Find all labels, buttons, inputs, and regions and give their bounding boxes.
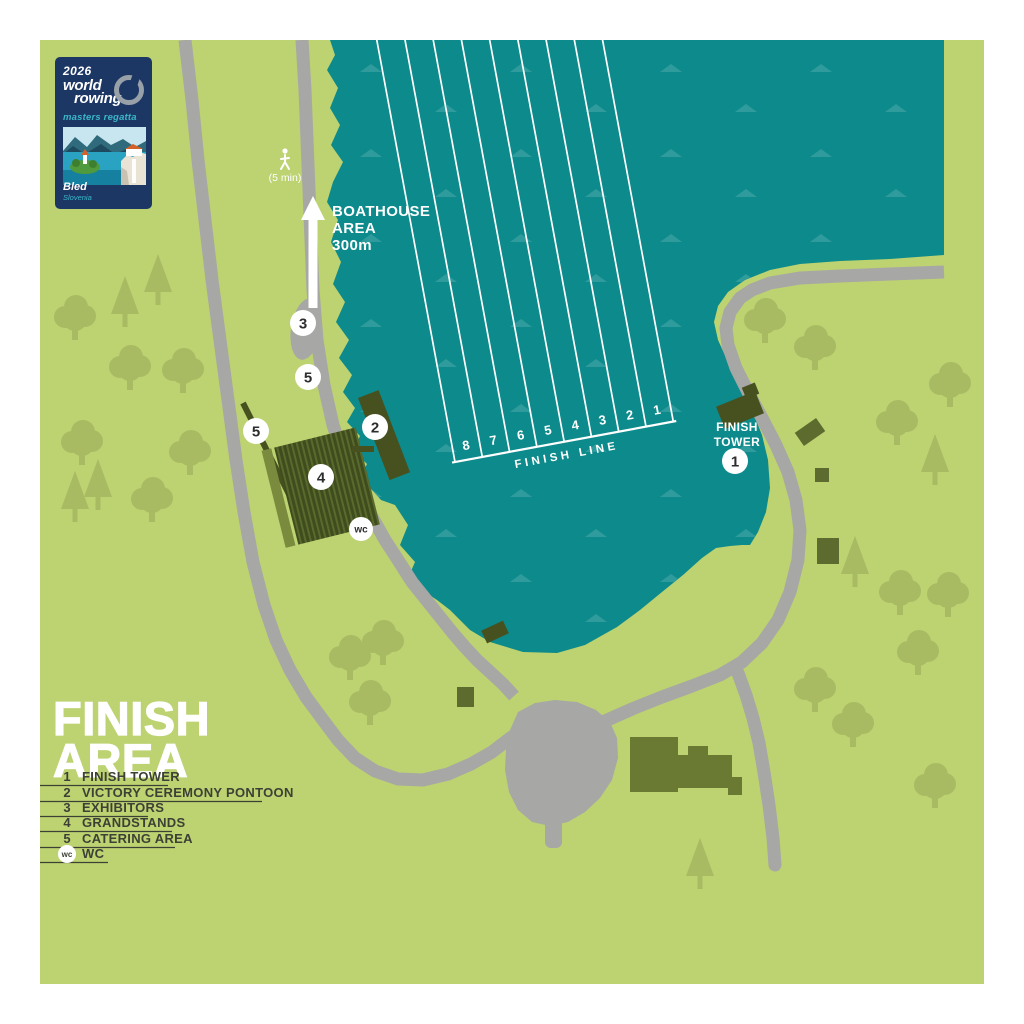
legend-label: FINISH TOWER [82, 769, 180, 784]
small-building-b [817, 538, 839, 564]
badge-event-name: masters regatta [63, 112, 145, 123]
finish-area-map: 8 7 6 5 4 3 2 1 FINISH LINE [40, 40, 984, 984]
marker-exhibitors-number: 3 [299, 316, 307, 333]
plaza-south-stub [545, 818, 562, 848]
finish-tower-label-line2: TOWER [714, 435, 760, 449]
marker-catering-road: 5 [295, 364, 321, 390]
marker-catering-strip-number: 5 [252, 424, 260, 441]
rowing-ring-icon [114, 75, 144, 105]
marker-grandstands: 4 [308, 464, 334, 490]
legend-key: 2 [63, 785, 70, 800]
marker-victory-pontoon: 2 [362, 414, 388, 440]
badge-city: Bled [63, 182, 92, 193]
marker-wc: wc [349, 517, 373, 541]
marker-catering-strip: 5 [243, 418, 269, 444]
marker-exhibitors: 3 [290, 310, 316, 336]
marker-wc-label: wc [353, 525, 368, 536]
legend-label: EXHIBITORS [82, 800, 164, 815]
legend-key: 1 [63, 769, 70, 784]
marker-finish-tower-number: 1 [731, 454, 739, 471]
finish-tower-label-line1: FINISH [716, 420, 758, 434]
legend-label: WC [82, 846, 105, 861]
badge-country: Slovenia [63, 193, 92, 202]
bled-scene [63, 127, 146, 185]
regatta-finish-area-map-page: 8 7 6 5 4 3 2 1 FINISH LINE [0, 0, 1024, 1024]
walk-time-label: (5 min) [269, 172, 302, 184]
legend-label: VICTORY CEREMONY PONTOON [82, 785, 294, 800]
legend-row: 5 CATERING AREA [40, 831, 193, 848]
marker-grandstands-number: 4 [317, 470, 326, 487]
small-building-c [457, 687, 474, 707]
legend-label: GRANDSTANDS [82, 815, 185, 830]
legend-key: 3 [63, 800, 70, 815]
event-badge: 2026 world rowing masters regatta [55, 57, 152, 209]
boathouse-label-line3: 300m [332, 237, 372, 254]
marker-victory-pontoon-number: 2 [371, 420, 379, 437]
marker-catering-road-number: 5 [304, 370, 312, 387]
badge-location: Bled Slovenia [63, 182, 92, 202]
legend-key: wc [61, 850, 73, 859]
legend-label: CATERING AREA [82, 831, 193, 846]
legend-key: 5 [63, 831, 70, 846]
map-canvas: 8 7 6 5 4 3 2 1 FINISH LINE [40, 40, 984, 984]
boathouse-label-line2: AREA [332, 220, 376, 237]
pontoon-gangway [352, 446, 374, 452]
world-rowing-logo: world rowing [63, 79, 145, 109]
legend-key: 4 [63, 815, 71, 830]
boathouse-label-line1: BOATHOUSE [332, 203, 430, 220]
marker-finish-tower: 1 [722, 448, 748, 474]
small-building-a [815, 468, 829, 482]
